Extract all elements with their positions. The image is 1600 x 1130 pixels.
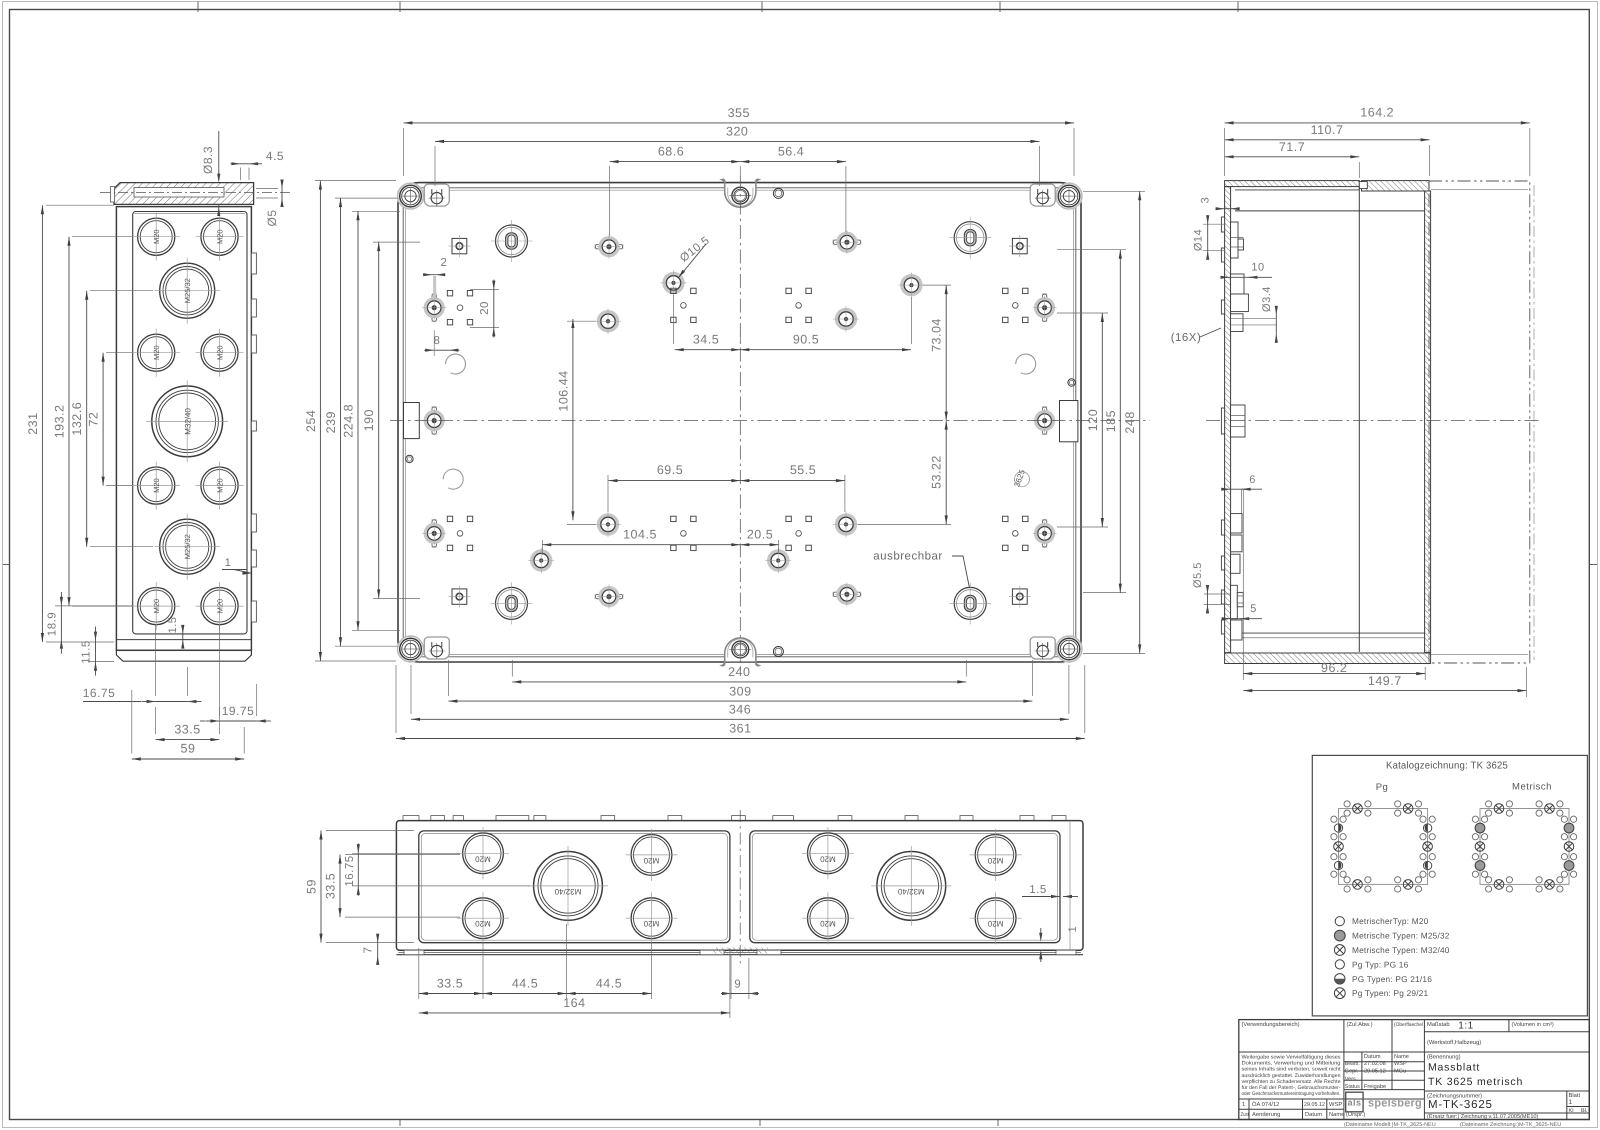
svg-text:M20: M20: [152, 599, 161, 614]
svg-text:56.4: 56.4: [778, 145, 804, 159]
svg-text:Pg: Pg: [1376, 782, 1389, 793]
svg-text:Massblatt: Massblatt: [1428, 1062, 1480, 1074]
svg-text:29.05.12: 29.05.12: [1364, 1069, 1386, 1075]
svg-text:2: 2: [441, 257, 448, 269]
svg-text:M20: M20: [820, 854, 836, 863]
svg-text:309: 309: [729, 685, 751, 699]
svg-text:Ø5.5: Ø5.5: [1192, 562, 1204, 588]
svg-text:Freigabe: Freigabe: [1364, 1083, 1386, 1090]
svg-text:1:1: 1:1: [1458, 1021, 1473, 1032]
svg-text:(Werkstoff,Halbzeug): (Werkstoff,Halbzeug): [1427, 1039, 1481, 1046]
svg-text:Datum: Datum: [1305, 1112, 1322, 1118]
svg-text:240: 240: [728, 665, 750, 679]
svg-text:WSP: WSP: [1394, 1061, 1407, 1067]
svg-text:Zust.: Zust.: [1241, 1112, 1251, 1118]
svg-text:1: 1: [1067, 926, 1079, 933]
svg-text:KI: KI: [1569, 1108, 1575, 1114]
svg-text:90.5: 90.5: [793, 333, 819, 347]
svg-text:Gepr.: Gepr.: [1345, 1069, 1359, 1075]
svg-text:190: 190: [362, 409, 376, 431]
svg-text:Bearb.: Bearb.: [1345, 1061, 1360, 1067]
svg-text:M20: M20: [152, 229, 161, 244]
svg-text:1.5: 1.5: [167, 617, 179, 634]
svg-text:44.5: 44.5: [512, 977, 538, 991]
svg-text:248: 248: [1123, 411, 1137, 433]
svg-text:193.2: 193.2: [53, 405, 67, 439]
svg-text:M25/32: M25/32: [183, 278, 192, 303]
svg-text:Status: Status: [1345, 1084, 1360, 1090]
svg-text:Vers.: Vers.: [1345, 1076, 1358, 1082]
svg-text:M-TK-3625: M-TK-3625: [1428, 1099, 1493, 1111]
svg-text:PG Typen: PG 21/16: PG Typen: PG 21/16: [1352, 974, 1432, 984]
svg-text:132.6: 132.6: [70, 402, 84, 436]
svg-text:19.75: 19.75: [222, 704, 255, 718]
svg-text:TK 3625 metrisch: TK 3625 metrisch: [1428, 1076, 1523, 1088]
svg-text:33.5: 33.5: [324, 873, 338, 899]
svg-text:(Oberflaechel: (Oberflaechel: [1394, 1022, 1423, 1028]
svg-text:ÖA 074/12: ÖA 074/12: [1252, 1101, 1279, 1108]
svg-text:für den Fall der Patent-, Gebr: für den Fall der Patent-, Gebrauchsmuste…: [1242, 1085, 1341, 1091]
svg-text:185: 185: [1104, 410, 1118, 432]
svg-text:(16X): (16X): [1171, 332, 1202, 344]
svg-text:M20: M20: [216, 478, 225, 493]
svg-text:20: 20: [479, 301, 491, 315]
svg-text:Katalogzeichnung: TK 3625: Katalogzeichnung: TK 3625: [1386, 761, 1508, 772]
svg-text:355: 355: [728, 106, 750, 120]
svg-text:96.2: 96.2: [1321, 661, 1347, 675]
svg-text:361: 361: [729, 722, 751, 736]
svg-text:seines Inhalts sind verboten,: seines Inhalts sind verboten, soweit nic…: [1242, 1067, 1342, 1073]
svg-text:ausbrechbar: ausbrechbar: [873, 551, 942, 563]
svg-text:(Dateiname Zeichnung:)M-TK_362: (Dateiname Zeichnung:)M-TK_3625-NEU: [1460, 1122, 1561, 1128]
svg-text:M25/32: M25/32: [183, 534, 192, 559]
svg-text:Weitergabe sowie Vervielfältig: Weitergabe sowie Vervielfältigung dieses: [1242, 1055, 1341, 1061]
svg-text:8: 8: [434, 335, 441, 347]
svg-text:(Verwendungsbereich): (Verwendungsbereich): [1242, 1021, 1300, 1028]
svg-text:73.04: 73.04: [930, 318, 944, 352]
svg-text:Ø8.3: Ø8.3: [201, 146, 215, 174]
svg-text:ausdrücklich gestattet. Zuwide: ausdrücklich gestattet. Zuwiderhandlunge…: [1242, 1073, 1341, 1079]
svg-text:346: 346: [729, 703, 751, 717]
svg-text:231: 231: [26, 412, 40, 434]
svg-text:16.75: 16.75: [344, 855, 356, 886]
svg-text:5: 5: [1250, 603, 1257, 615]
svg-text:20.5: 20.5: [747, 528, 773, 542]
svg-text:1.5: 1.5: [1029, 884, 1047, 896]
svg-text:9: 9: [734, 978, 741, 990]
svg-text:Aenderung: Aenderung: [1252, 1111, 1280, 1118]
svg-text:spelsberg: spelsberg: [1368, 1098, 1422, 1110]
svg-text:34.5: 34.5: [693, 333, 719, 347]
svg-text:55.5: 55.5: [790, 463, 816, 477]
svg-text:59: 59: [305, 879, 319, 894]
svg-text:104.5: 104.5: [623, 528, 657, 542]
svg-text:(Ersatz fuer:) Zeichnung v.11: (Ersatz fuer:) Zeichnung v.11.07.2005(ME…: [1427, 1113, 1539, 1120]
svg-text:Ø14: Ø14: [1193, 229, 1205, 251]
svg-text:1: 1: [225, 557, 232, 569]
svg-text:16.75: 16.75: [83, 686, 116, 700]
svg-text:27.02.08: 27.02.08: [1364, 1061, 1386, 1067]
svg-text:als: als: [1347, 1098, 1361, 1108]
svg-text:33.5: 33.5: [437, 977, 463, 991]
svg-text:53.22: 53.22: [930, 455, 944, 489]
svg-text:29.05.12: 29.05.12: [1304, 1102, 1325, 1108]
svg-text:M20: M20: [643, 919, 659, 928]
svg-text:44.5: 44.5: [596, 977, 622, 991]
svg-text:72: 72: [87, 412, 101, 427]
svg-text:M32/40: M32/40: [184, 408, 193, 435]
svg-text:MetrischerTyp: M20: MetrischerTyp: M20: [1352, 916, 1429, 926]
svg-text:verpflichten zu Schadenersatz.: verpflichten zu Schadenersatz. Alle Rech…: [1242, 1079, 1341, 1085]
svg-text:Maßstab: Maßstab: [1427, 1021, 1450, 1028]
svg-text:10: 10: [1251, 262, 1264, 274]
svg-text:164.2: 164.2: [1360, 106, 1394, 120]
svg-text:M20: M20: [643, 856, 659, 865]
svg-text:Ø3.4: Ø3.4: [1261, 286, 1273, 312]
svg-text:M20: M20: [987, 919, 1003, 928]
svg-text:M20: M20: [475, 854, 491, 863]
svg-text:164: 164: [563, 996, 585, 1010]
svg-text:69.5: 69.5: [657, 463, 683, 477]
svg-text:M20: M20: [152, 345, 161, 360]
svg-text:59: 59: [181, 742, 196, 756]
svg-text:Name: Name: [1329, 1112, 1344, 1118]
svg-text:(Volumen in cm³): (Volumen in cm³): [1512, 1021, 1554, 1028]
svg-text:3: 3: [1200, 197, 1212, 204]
svg-text:oder Geschmacksmustereintragun: oder Geschmacksmustereintragung vorbehal…: [1242, 1091, 1341, 1097]
svg-text:4.5: 4.5: [266, 149, 284, 163]
svg-text:320: 320: [726, 125, 748, 139]
svg-text:Dokuments, Verwertung und Mitt: Dokuments, Verwertung und Mitteilung: [1242, 1061, 1341, 1067]
svg-text:Name: Name: [1394, 1054, 1409, 1060]
svg-text:110.7: 110.7: [1311, 123, 1344, 137]
svg-text:1: 1: [1569, 1099, 1573, 1106]
svg-text:120: 120: [1086, 409, 1100, 431]
svg-text:M20: M20: [152, 478, 161, 493]
svg-text:M20: M20: [987, 856, 1003, 865]
svg-text:Metrisch: Metrisch: [1512, 782, 1552, 793]
svg-text:WSP: WSP: [1329, 1101, 1342, 1108]
svg-text:(Benennung): (Benennung): [1427, 1054, 1461, 1061]
svg-text:106.44: 106.44: [556, 370, 570, 411]
svg-text:6: 6: [1249, 474, 1256, 486]
svg-text:224.8: 224.8: [342, 404, 356, 438]
svg-text:71.7: 71.7: [1279, 140, 1305, 154]
svg-text:Ø5: Ø5: [265, 209, 279, 226]
svg-text:Datum: Datum: [1364, 1054, 1381, 1060]
svg-text:11.5: 11.5: [81, 640, 93, 664]
svg-text:M20: M20: [216, 229, 225, 244]
svg-text:M32/40: M32/40: [554, 887, 581, 896]
svg-text:18.9: 18.9: [47, 612, 59, 636]
svg-text:68.6: 68.6: [658, 145, 684, 159]
svg-text:7: 7: [363, 947, 375, 954]
svg-text:Pg Typ: PG 16: Pg Typ: PG 16: [1352, 959, 1409, 969]
svg-text:239: 239: [324, 411, 338, 433]
svg-text:Pg Typen: Pg 29/21: Pg Typen: Pg 29/21: [1352, 988, 1429, 998]
svg-text:MGu: MGu: [1394, 1069, 1406, 1075]
svg-text:33.5: 33.5: [174, 723, 200, 737]
svg-text:M20: M20: [820, 919, 836, 928]
svg-text:Bl.: Bl.: [1581, 1108, 1588, 1114]
svg-text:(Zul.Abw.): (Zul.Abw.): [1347, 1021, 1373, 1028]
svg-text:M32/40: M32/40: [897, 887, 924, 896]
svg-text:M20: M20: [475, 919, 491, 928]
svg-text:254: 254: [304, 410, 318, 432]
svg-text:Blatt: Blatt: [1569, 1092, 1581, 1099]
svg-text:Metrische Typen: M25/32: Metrische Typen: M25/32: [1352, 931, 1450, 941]
svg-text:M20: M20: [216, 345, 225, 360]
svg-text:M20: M20: [216, 599, 225, 614]
svg-text:1: 1: [1242, 1102, 1245, 1108]
svg-text:149.7: 149.7: [1368, 674, 1402, 688]
svg-text:Metrische Typen: M32/40: Metrische Typen: M32/40: [1352, 945, 1450, 955]
svg-text:(Dateiname Modell:)M-TK_3625-N: (Dateiname Modell:)M-TK_3625-NEU: [1344, 1122, 1436, 1128]
